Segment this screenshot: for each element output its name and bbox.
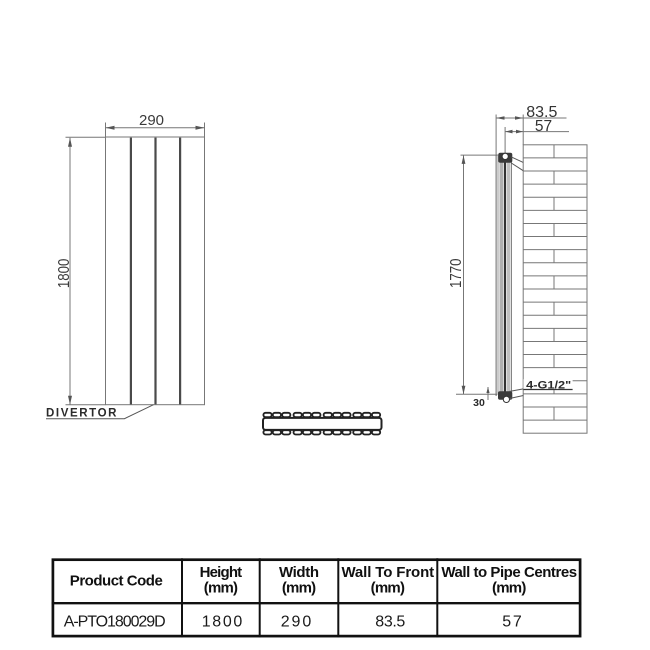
svg-text:A-PTO180029D: A-PTO180029D <box>64 613 166 630</box>
svg-text:Wall To Front: Wall To Front <box>341 564 434 581</box>
svg-text:290: 290 <box>281 613 312 630</box>
svg-text:(mm): (mm) <box>371 580 405 597</box>
svg-text:(mm): (mm) <box>204 580 238 597</box>
svg-text:DIVERTOR: DIVERTOR <box>46 407 118 419</box>
svg-text:30: 30 <box>473 397 485 409</box>
svg-text:Product Code: Product Code <box>70 572 163 589</box>
svg-text:(mm): (mm) <box>492 580 526 597</box>
svg-text:290: 290 <box>139 112 164 129</box>
svg-text:1770: 1770 <box>448 258 465 288</box>
svg-text:1800: 1800 <box>202 613 243 630</box>
svg-text:Width: Width <box>279 564 319 581</box>
svg-text:57: 57 <box>502 613 522 630</box>
svg-text:1800: 1800 <box>56 258 73 288</box>
svg-text:83.5: 83.5 <box>375 613 405 630</box>
svg-text:Wall to Pipe Centres: Wall to Pipe Centres <box>441 564 577 581</box>
svg-text:Height: Height <box>200 564 243 581</box>
svg-text:(mm): (mm) <box>282 580 316 597</box>
svg-text:57: 57 <box>535 118 552 135</box>
